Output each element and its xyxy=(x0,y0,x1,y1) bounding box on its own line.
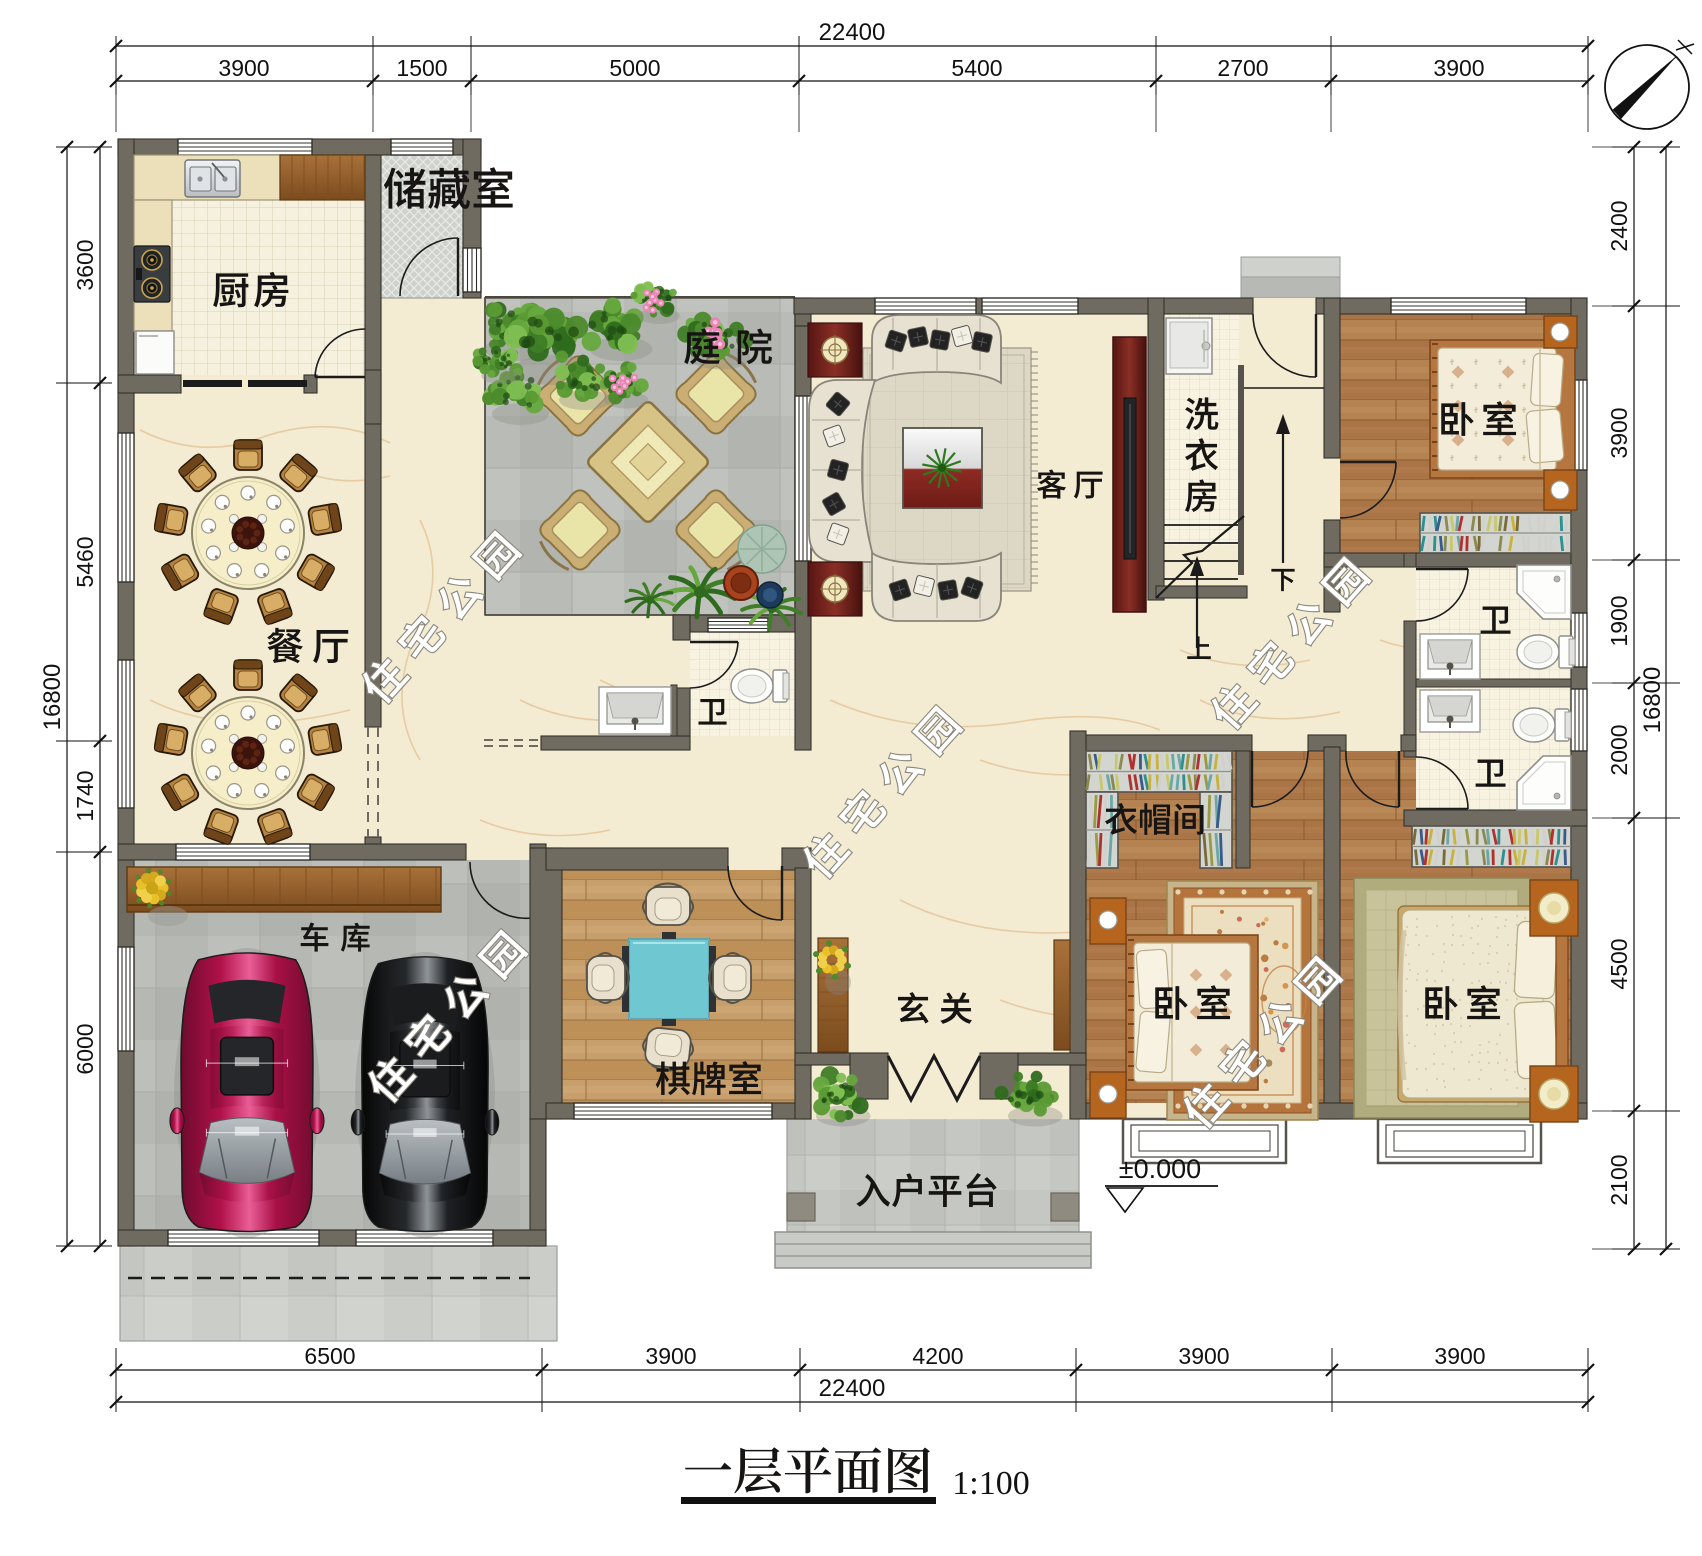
svg-text:3900: 3900 xyxy=(1606,407,1632,458)
svg-text:1900: 1900 xyxy=(1606,595,1632,646)
svg-text:16800: 16800 xyxy=(1639,667,1666,734)
svg-text:22400: 22400 xyxy=(819,19,886,46)
svg-text:5460: 5460 xyxy=(72,536,98,587)
svg-text:6500: 6500 xyxy=(304,1343,355,1369)
svg-text:16800: 16800 xyxy=(39,664,66,731)
svg-text:3900: 3900 xyxy=(218,55,269,81)
svg-text:1740: 1740 xyxy=(72,770,98,821)
svg-text:6000: 6000 xyxy=(72,1023,98,1074)
svg-text:3900: 3900 xyxy=(1433,55,1484,81)
svg-text:2000: 2000 xyxy=(1606,724,1632,775)
svg-text:3900: 3900 xyxy=(645,1343,696,1369)
svg-text:1:100: 1:100 xyxy=(952,1465,1029,1502)
svg-text:3900: 3900 xyxy=(1178,1343,1229,1369)
svg-text:±0.000: ±0.000 xyxy=(1119,1154,1201,1184)
svg-text:4500: 4500 xyxy=(1606,938,1632,989)
svg-text:4200: 4200 xyxy=(912,1343,963,1369)
svg-text:3600: 3600 xyxy=(72,239,98,290)
svg-text:5400: 5400 xyxy=(951,55,1002,81)
svg-text:2700: 2700 xyxy=(1217,55,1268,81)
svg-text:1500: 1500 xyxy=(396,55,447,81)
svg-text:2100: 2100 xyxy=(1606,1154,1632,1205)
svg-text:22400: 22400 xyxy=(819,1375,886,1402)
svg-text:2400: 2400 xyxy=(1606,200,1632,251)
svg-text:3900: 3900 xyxy=(1434,1343,1485,1369)
svg-text:5000: 5000 xyxy=(609,55,660,81)
